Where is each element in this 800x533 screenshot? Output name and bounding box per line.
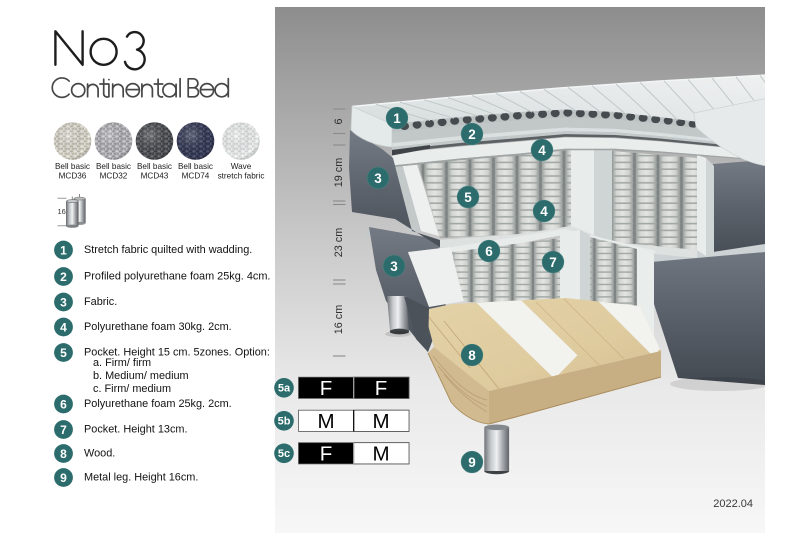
svg-text:MCD32: MCD32 (100, 171, 128, 180)
svg-text:5c: 5c (278, 448, 290, 460)
svg-text:4: 4 (540, 204, 548, 219)
svg-text:MCD36: MCD36 (59, 171, 87, 180)
svg-text:F: F (375, 377, 388, 400)
svg-text:M: M (317, 410, 334, 433)
svg-text:5b: 5b (278, 416, 291, 428)
svg-text:Bell basic: Bell basic (55, 162, 90, 171)
svg-text:8: 8 (60, 447, 67, 461)
svg-text:2: 2 (60, 270, 67, 284)
svg-text:Profiled polyurethane foam 25k: Profiled polyurethane foam 25kg. 4cm. (84, 270, 270, 282)
svg-text:a. Firm/ firm: a. Firm/ firm (93, 357, 151, 369)
svg-text:6: 6 (485, 244, 493, 259)
svg-text:c. Firm/ medium: c. Firm/ medium (93, 383, 171, 395)
svg-text:F: F (320, 377, 333, 400)
svg-text:Wave: Wave (231, 162, 252, 171)
svg-text:Wood.: Wood. (84, 447, 115, 459)
svg-text:3: 3 (390, 259, 398, 274)
svg-text:4: 4 (538, 143, 546, 158)
svg-text:MCD74: MCD74 (182, 171, 210, 180)
svg-text:Bell basic: Bell basic (96, 162, 131, 171)
svg-text:Polyurethane foam 25kg. 2cm.: Polyurethane foam 25kg. 2cm. (84, 398, 232, 410)
svg-text:Fabric.: Fabric. (84, 296, 117, 308)
svg-text:6: 6 (333, 118, 345, 124)
svg-text:Bell basic: Bell basic (137, 162, 172, 171)
svg-text:b. Medium/ medium: b. Medium/ medium (93, 370, 189, 382)
svg-text:2: 2 (468, 127, 476, 142)
svg-text:23 cm: 23 cm (333, 228, 345, 257)
svg-text:5: 5 (464, 190, 472, 205)
svg-text:8: 8 (468, 348, 476, 363)
svg-text:5a: 5a (278, 383, 291, 395)
svg-text:stretch fabric: stretch fabric (218, 171, 265, 180)
svg-text:1: 1 (393, 111, 401, 126)
svg-text:16: 16 (58, 207, 66, 216)
svg-text:M: M (372, 443, 389, 466)
svg-text:Polyurethane foam 30kg. 2cm.: Polyurethane foam 30kg. 2cm. (84, 321, 232, 333)
svg-text:3: 3 (374, 171, 382, 186)
svg-text:6: 6 (60, 397, 67, 411)
svg-text:7: 7 (549, 255, 557, 270)
svg-text:MCD43: MCD43 (141, 171, 169, 180)
svg-text:Metal leg. Height 16cm.: Metal leg. Height 16cm. (84, 471, 198, 483)
svg-text:7: 7 (60, 423, 67, 437)
svg-text:M: M (372, 410, 389, 433)
svg-text:19 cm: 19 cm (333, 158, 345, 187)
svg-text:Pocket. Height 13cm.: Pocket. Height 13cm. (84, 423, 188, 435)
svg-text:16 cm: 16 cm (333, 305, 345, 334)
svg-text:9: 9 (60, 471, 67, 485)
svg-text:Bell basic: Bell basic (178, 162, 213, 171)
svg-text:Stretch fabric quilted with wa: Stretch fabric quilted with wadding. (84, 244, 252, 256)
svg-text:4: 4 (60, 320, 67, 334)
svg-text:9: 9 (468, 455, 476, 470)
svg-text:3: 3 (60, 295, 67, 309)
svg-text:5: 5 (60, 346, 67, 360)
svg-text:2022.04: 2022.04 (713, 498, 753, 510)
svg-text:1: 1 (60, 243, 67, 257)
svg-text:F: F (320, 443, 333, 466)
